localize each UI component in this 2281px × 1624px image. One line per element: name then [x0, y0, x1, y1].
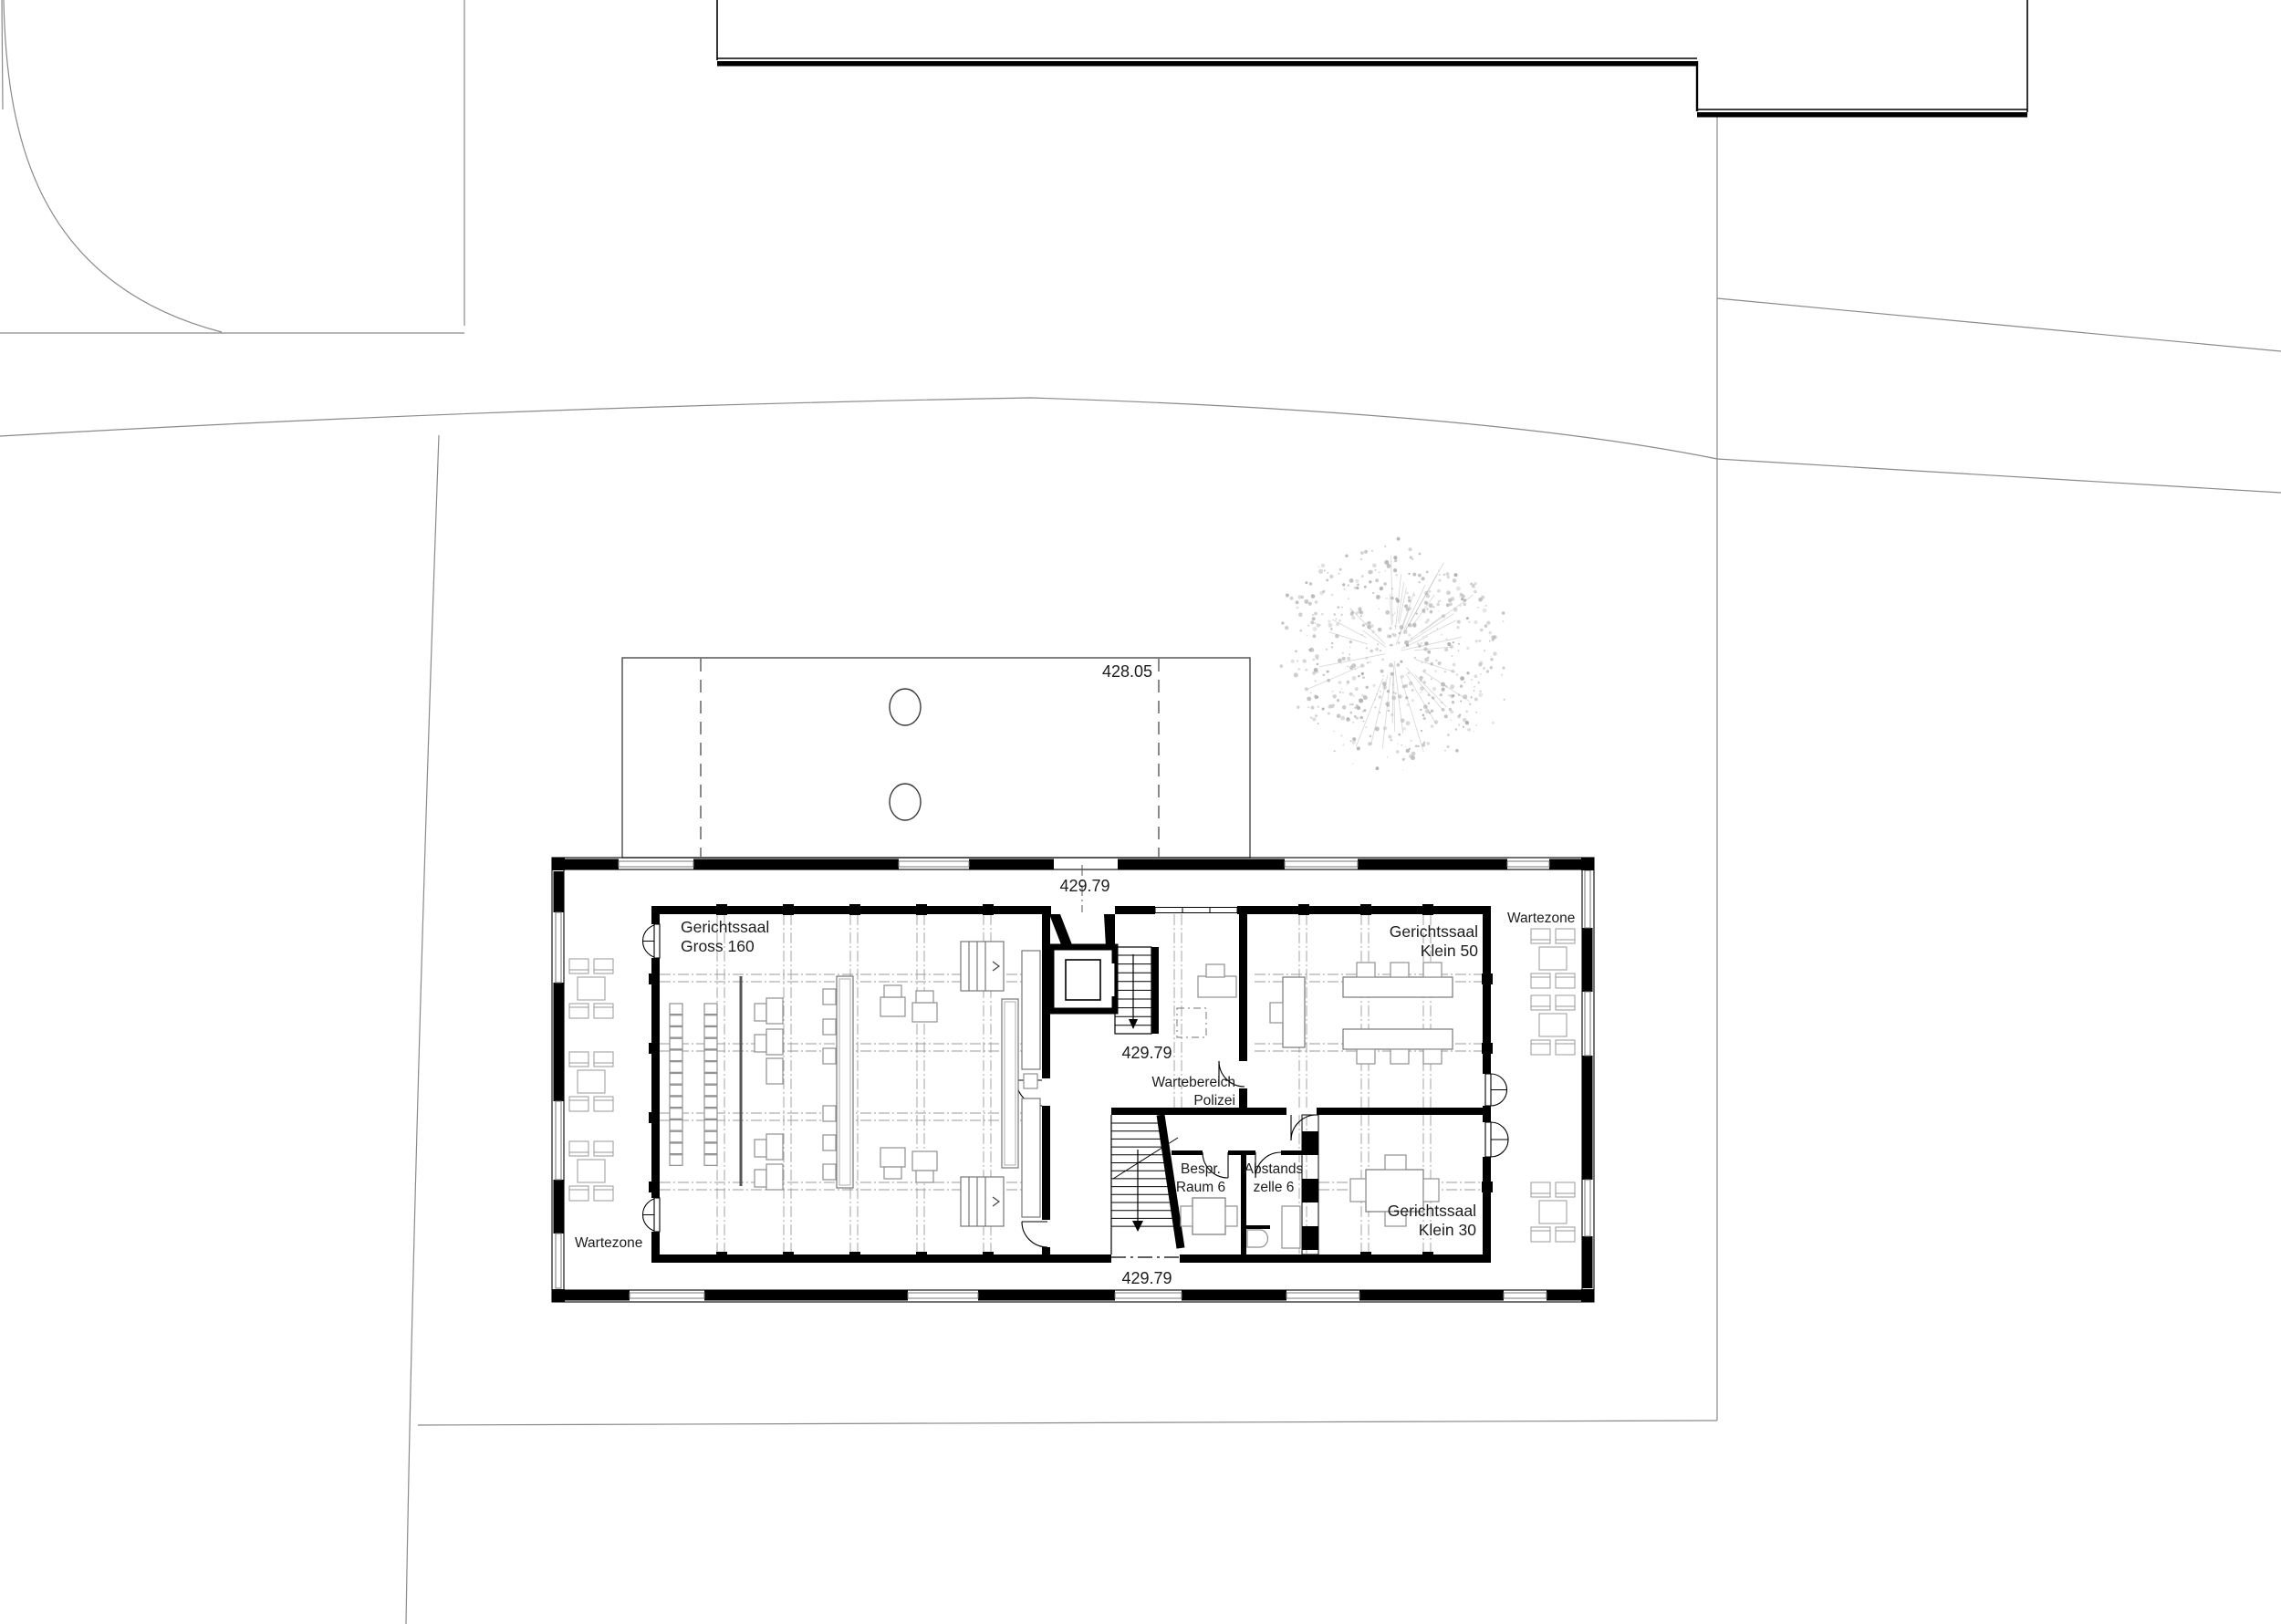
parcel-line-bottom	[418, 1421, 1717, 1425]
stairs-down-icon-lower	[1111, 1115, 1182, 1257]
plan-labels: 429.79 429.79 429.79 Gerichtssaal Gross …	[575, 877, 1575, 1287]
adjacent-building-outlines	[717, 0, 2027, 118]
room-wartebereich-polizei	[1177, 964, 1236, 1037]
tree-pit-circle	[890, 689, 921, 725]
level-label-top: 429.79	[1059, 877, 1109, 895]
floor-plan-drawing: 428.05	[0, 0, 2281, 1624]
room-gerichtssaal-gross	[670, 942, 1040, 1226]
level-label-terrace: 428.05	[1102, 662, 1152, 681]
room-label-bespr-2: Raum 6	[1176, 1180, 1225, 1195]
forecourt-terrace	[622, 658, 1250, 858]
room-label-polizei: Wartebereich	[1151, 1075, 1235, 1090]
tree-icon	[1280, 537, 1505, 771]
room-label-klein50: Gerichtssaal	[1390, 922, 1478, 941]
street-corner-curve	[4, 0, 222, 332]
gallery-seating	[670, 1004, 717, 1165]
room-label-zelle: Abstands	[1245, 1161, 1304, 1177]
room-label-gross-2: Gross 160	[681, 937, 755, 955]
level-label-bottom: 429.79	[1121, 1269, 1172, 1287]
clerk-tables	[880, 985, 937, 1182]
tree-pit-circle	[890, 784, 921, 820]
room-label-gross: Gerichtssaal	[681, 918, 769, 936]
desk-chair	[1206, 964, 1224, 977]
wc-icon	[1247, 1230, 1267, 1247]
stairs-down-icon-upper	[1115, 947, 1159, 1034]
room-label-klein30-2: Klein 30	[1419, 1221, 1477, 1239]
room-label-polizei-2: Polizei	[1193, 1093, 1235, 1109]
room-bespr-raum	[1181, 1198, 1237, 1234]
room-label-zelle-2: zelle 6	[1254, 1180, 1295, 1195]
parcel-line-upper	[0, 398, 2281, 493]
level-label-core: 429.79	[1121, 1044, 1172, 1062]
cell-corridor-wall	[1302, 1115, 1318, 1254]
zone-label-right: Wartezone	[1507, 911, 1575, 926]
parcel-line-left	[406, 435, 439, 1624]
site-boundary-lines	[0, 0, 2281, 1624]
site-plan-page: 428.05	[0, 0, 2281, 1624]
room-label-bespr: Bespr.	[1181, 1161, 1221, 1177]
desk	[1198, 976, 1236, 997]
elevator-icon	[1051, 947, 1115, 1011]
room-label-klein30: Gerichtssaal	[1388, 1202, 1476, 1220]
room-label-klein50-2: Klein 50	[1421, 942, 1479, 960]
zone-label-left: Wartezone	[575, 1235, 642, 1251]
party-tables	[755, 998, 783, 1190]
